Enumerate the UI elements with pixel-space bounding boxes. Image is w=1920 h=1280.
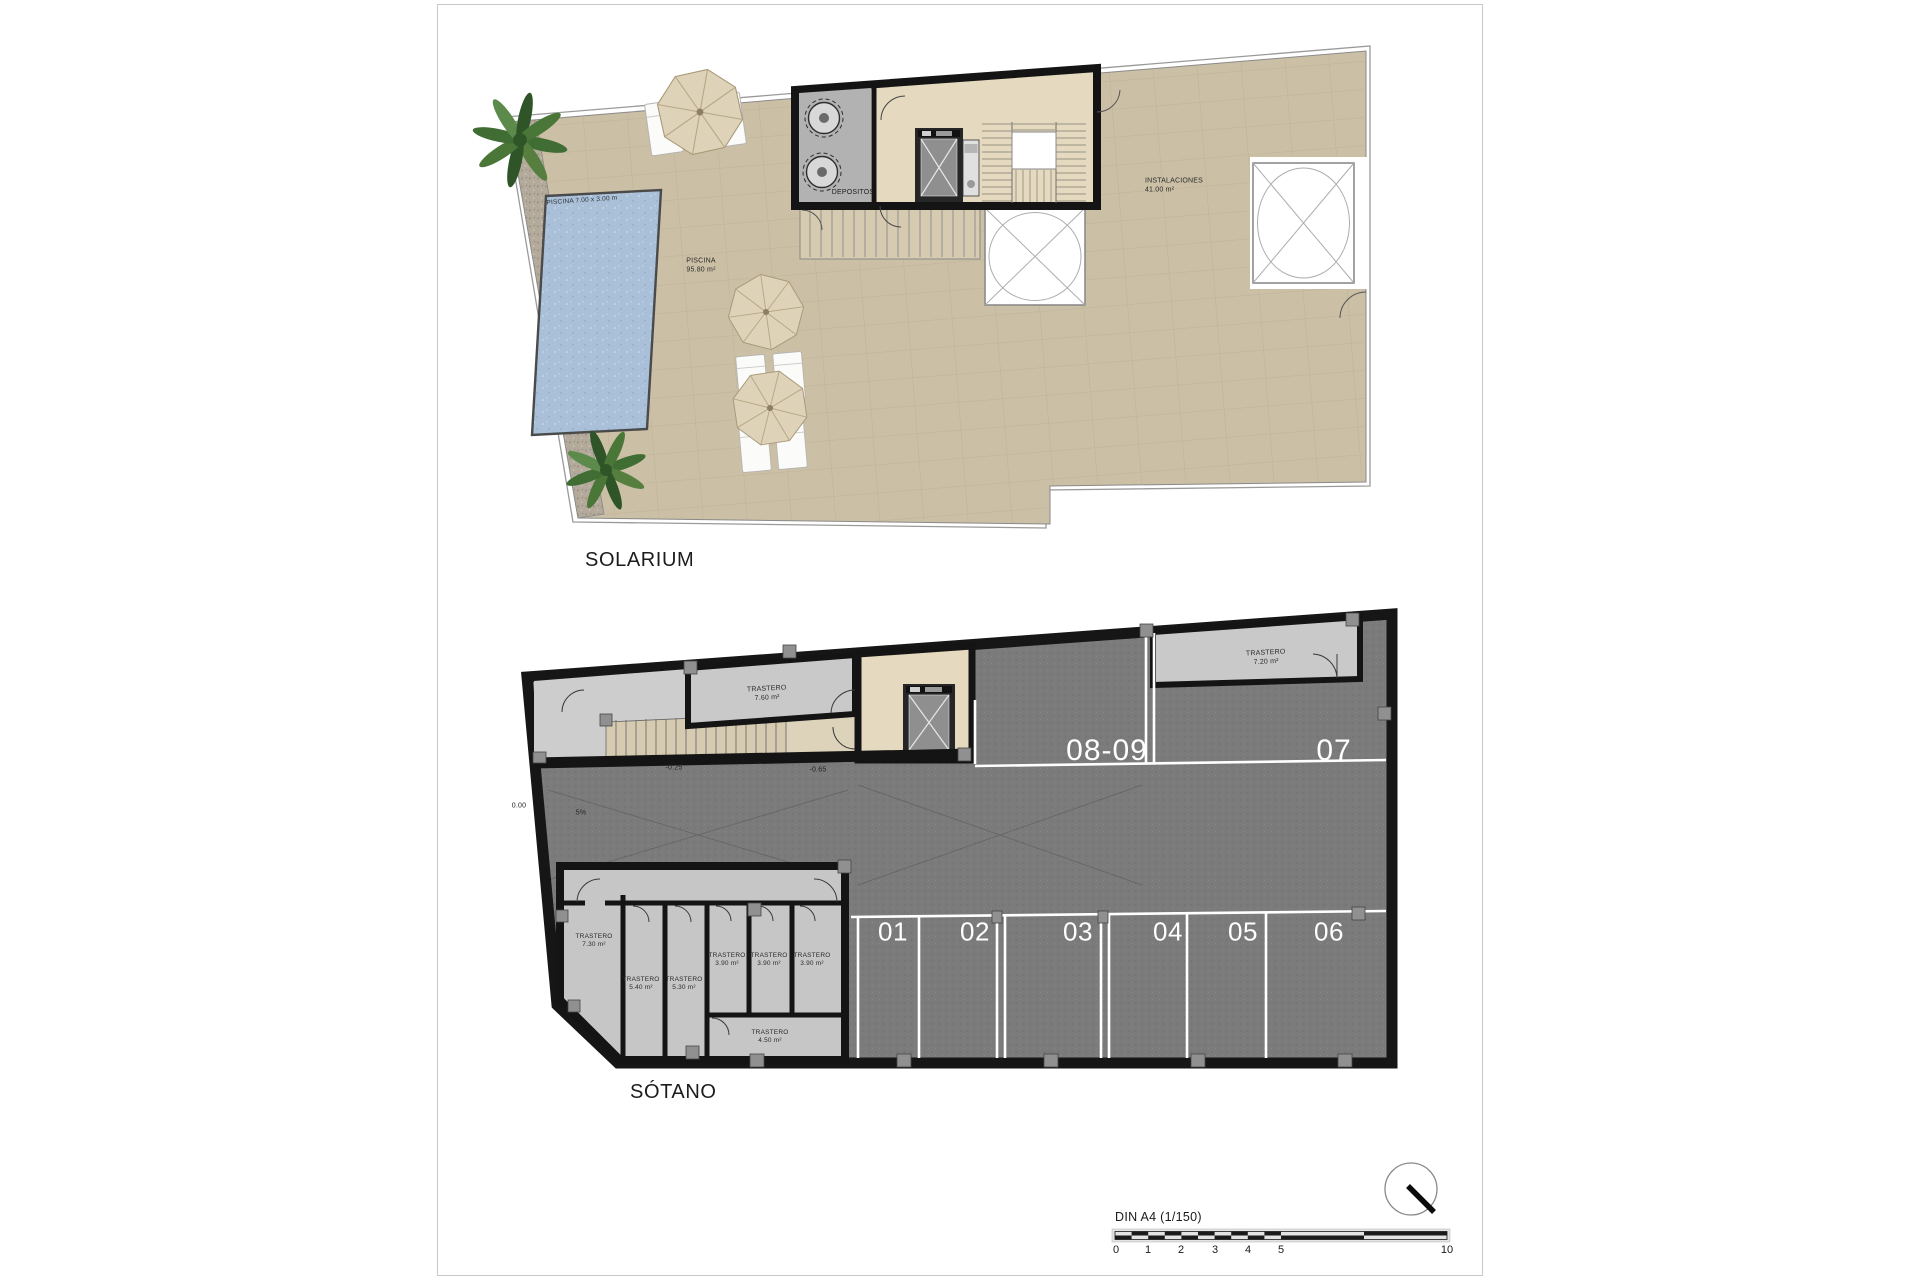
scale-tick-0: 0 [1113,1244,1119,1256]
storage-540-label: TRASTERO 5.40 m² [623,976,660,992]
sotano-plan [527,613,1392,1067]
elevator-top [915,128,963,202]
scale-tick-3: 3 [1212,1244,1218,1256]
floorplan-sheet: PISCINA 7.00 x 3.00 m PISCINA 95.80 m² D… [0,0,1920,1280]
solarium-plan [463,46,1370,528]
north-indicator-icon [1385,1163,1437,1215]
shaft-center [985,208,1085,305]
storage-390c-label: TRASTERO 3.90 m² [794,952,831,968]
parking-spot-03: 03 [1063,917,1093,948]
scale-tick-2: 2 [1178,1244,1184,1256]
parking-spot-08-09: 08-09 [1066,734,1148,768]
trastero-760-label: TRASTERO 7.60 m² [747,684,788,703]
bathroom [963,140,979,196]
parking-spot-05: 05 [1228,917,1258,948]
scale-tick-10: 10 [1441,1244,1453,1256]
trastero-720-label: TRASTERO 7.20 m² [1246,648,1287,667]
floorplan-drawing [0,0,1920,1280]
storage-390b-label: TRASTERO 3.90 m² [751,952,788,968]
parking-spot-01: 01 [878,917,908,948]
scale-bar [1112,1229,1450,1242]
parking-spot-04: 04 [1153,917,1183,948]
slope-annotation: 5% [576,810,587,817]
solarium-title: SOLARIUM [585,549,694,572]
storage-530-label: TRASTERO 5.30 m² [666,976,703,992]
level-annotation-mid: -0.25 [666,765,683,772]
pool [532,190,661,435]
instalaciones-label: INSTALACIONES 41.00 m² [1145,178,1203,195]
parking-spot-06: 06 [1314,917,1344,948]
scale-tick-4: 4 [1245,1244,1251,1256]
elevator-basement [903,684,955,756]
depositos-label: DEPOSITOS [832,189,875,198]
storage-390a-label: TRASTERO 3.90 m² [709,952,746,968]
scale-tick-5: 5 [1278,1244,1284,1256]
storage-450-label: TRASTERO 4.50 m² [752,1029,789,1045]
core-top [795,68,1120,227]
level-annotation-right: -0.65 [810,767,827,774]
piscina-area-label: PISCINA 95.80 m² [686,258,715,275]
sotano-title: SÓTANO [630,1081,717,1104]
parking-spot-02: 02 [960,917,990,948]
scale-tick-1: 1 [1145,1244,1151,1256]
scale-label: DIN A4 (1/150) [1115,1210,1202,1224]
parking-spot-07: 07 [1316,734,1351,768]
storage-730-label: TRASTERO 7.30 m² [576,933,613,949]
level-annotation-zero: 0.00 [512,803,526,810]
deck-stair [800,207,980,259]
